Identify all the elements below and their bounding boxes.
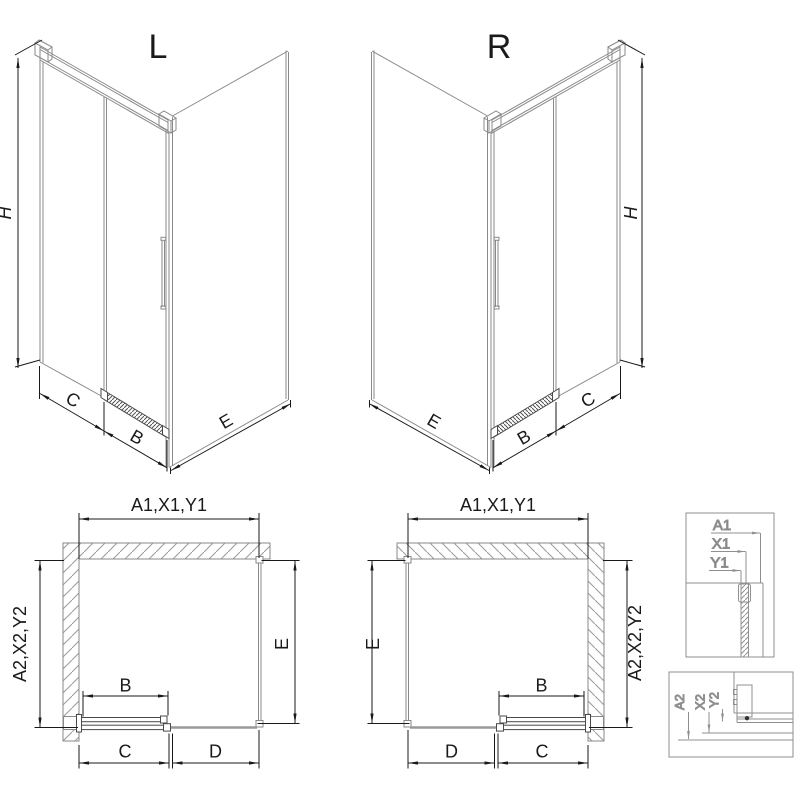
- plan-left-dim-b: B: [119, 676, 131, 696]
- plan-right-dim-d: D: [445, 742, 458, 762]
- detail-bottom-frame: [669, 672, 793, 757]
- detail-inset-bottom: A2 X2 Y2: [669, 672, 793, 757]
- shower-enclosure-drawing: L H C B E R H E B C A1,X1,Y1 A2,X2,Y2 E …: [0, 0, 800, 800]
- iso-view-right: R H E B C: [369, 28, 645, 474]
- plan-right-dim-top: A1,X1,Y1: [460, 495, 536, 515]
- iso-right-lineart: [369, 40, 645, 474]
- plan-right-dim-c: C: [536, 742, 549, 762]
- dim-label-height-right: H: [621, 206, 641, 220]
- technical-drawing-page: L H C B E R H E B C A1,X1,Y1 A2,X2,Y2 E …: [0, 0, 800, 800]
- wall-profile-hatch: [741, 583, 749, 657]
- roller-wheel: [745, 716, 749, 720]
- plan-right-dim-right: A2,X2,Y2: [625, 605, 645, 681]
- plan-left-dim-d: D: [209, 742, 222, 762]
- iso-left-lineart: [15, 40, 291, 474]
- detail-bottom-label-y2: Y2: [707, 692, 722, 708]
- plan-right-dim-b: B: [535, 676, 547, 696]
- roller-carriage: [737, 685, 752, 717]
- plan-left-dim-left: A2,X2,Y2: [10, 606, 30, 682]
- dim-label-b-left: B: [127, 426, 147, 449]
- plan-view-left: A1,X1,Y1 A2,X2,Y2 E B C D: [10, 495, 300, 769]
- dim-label-e-right: E: [424, 410, 444, 433]
- detail-bottom-label-x2: X2: [693, 694, 708, 710]
- plan-left-lineart: [35, 513, 300, 769]
- detail-top-label-x1: X1: [712, 536, 730, 553]
- dim-label-e-left: E: [216, 410, 236, 433]
- plan-right-dim-left: E: [363, 638, 383, 650]
- detail-bottom-label-a2: A2: [672, 694, 687, 710]
- plan-left-dim-right: E: [272, 638, 292, 650]
- plan-view-right: A1,X1,Y1 E A2,X2,Y2 B D C: [363, 495, 645, 769]
- plan-left-dim-c: C: [119, 742, 132, 762]
- detail-top-label-y1: Y1: [710, 555, 728, 572]
- plan-left-dim-top: A1,X1,Y1: [131, 495, 207, 515]
- plan-right-lineart: [368, 513, 633, 769]
- iso-view-left: L H C B E: [0, 28, 291, 474]
- detail-top-label-a1: A1: [713, 517, 731, 534]
- view-left-title: L: [149, 28, 168, 66]
- dim-label-height-left: H: [0, 206, 15, 220]
- view-right-title: R: [487, 28, 512, 66]
- detail-inset-top: A1 X1 Y1: [686, 513, 774, 657]
